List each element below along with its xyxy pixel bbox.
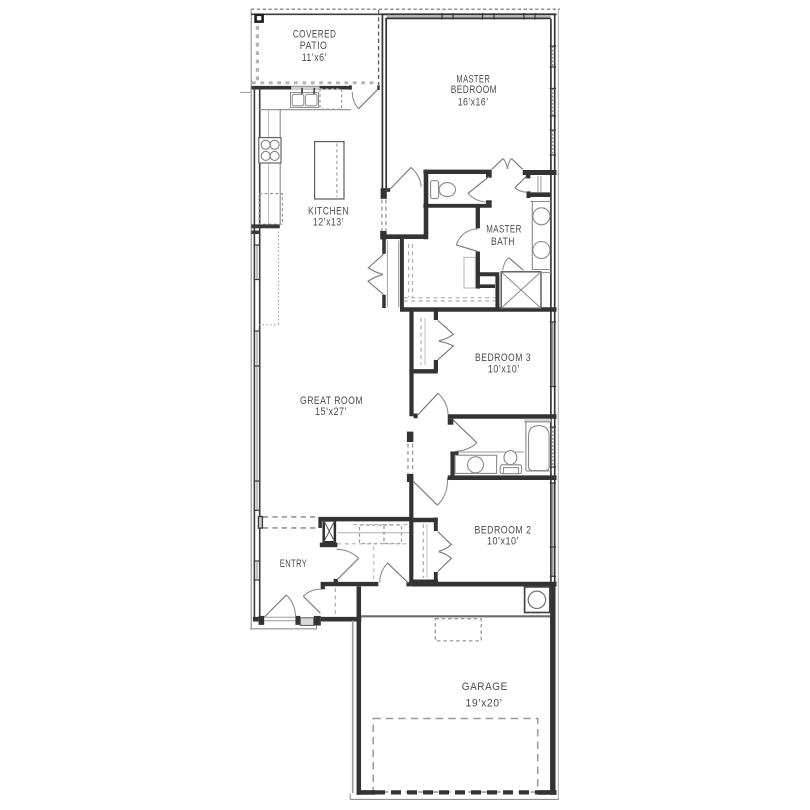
svg-text:BEDROOM 3: BEDROOM 3 [475,352,531,364]
svg-text:MASTER: MASTER [486,223,522,235]
svg-text:15’x27’: 15’x27’ [315,406,347,418]
svg-text:PATIO: PATIO [300,40,328,52]
svg-text:COVERED: COVERED [293,28,337,40]
svg-text:ENTRY: ENTRY [280,558,308,570]
svg-text:BEDROOM: BEDROOM [451,84,497,96]
svg-text:10’x10’: 10’x10’ [488,363,520,375]
svg-text:GARAGE: GARAGE [462,681,508,693]
svg-text:16’x16’: 16’x16’ [458,97,489,109]
svg-text:12’x13’: 12’x13’ [313,216,344,228]
svg-text:10’x10’: 10’x10’ [487,535,519,547]
svg-text:19’x20’: 19’x20’ [466,698,503,710]
svg-text:BATH: BATH [491,236,515,248]
svg-text:GREAT ROOM: GREAT ROOM [300,395,363,407]
svg-text:11’x6’: 11’x6’ [302,52,327,64]
